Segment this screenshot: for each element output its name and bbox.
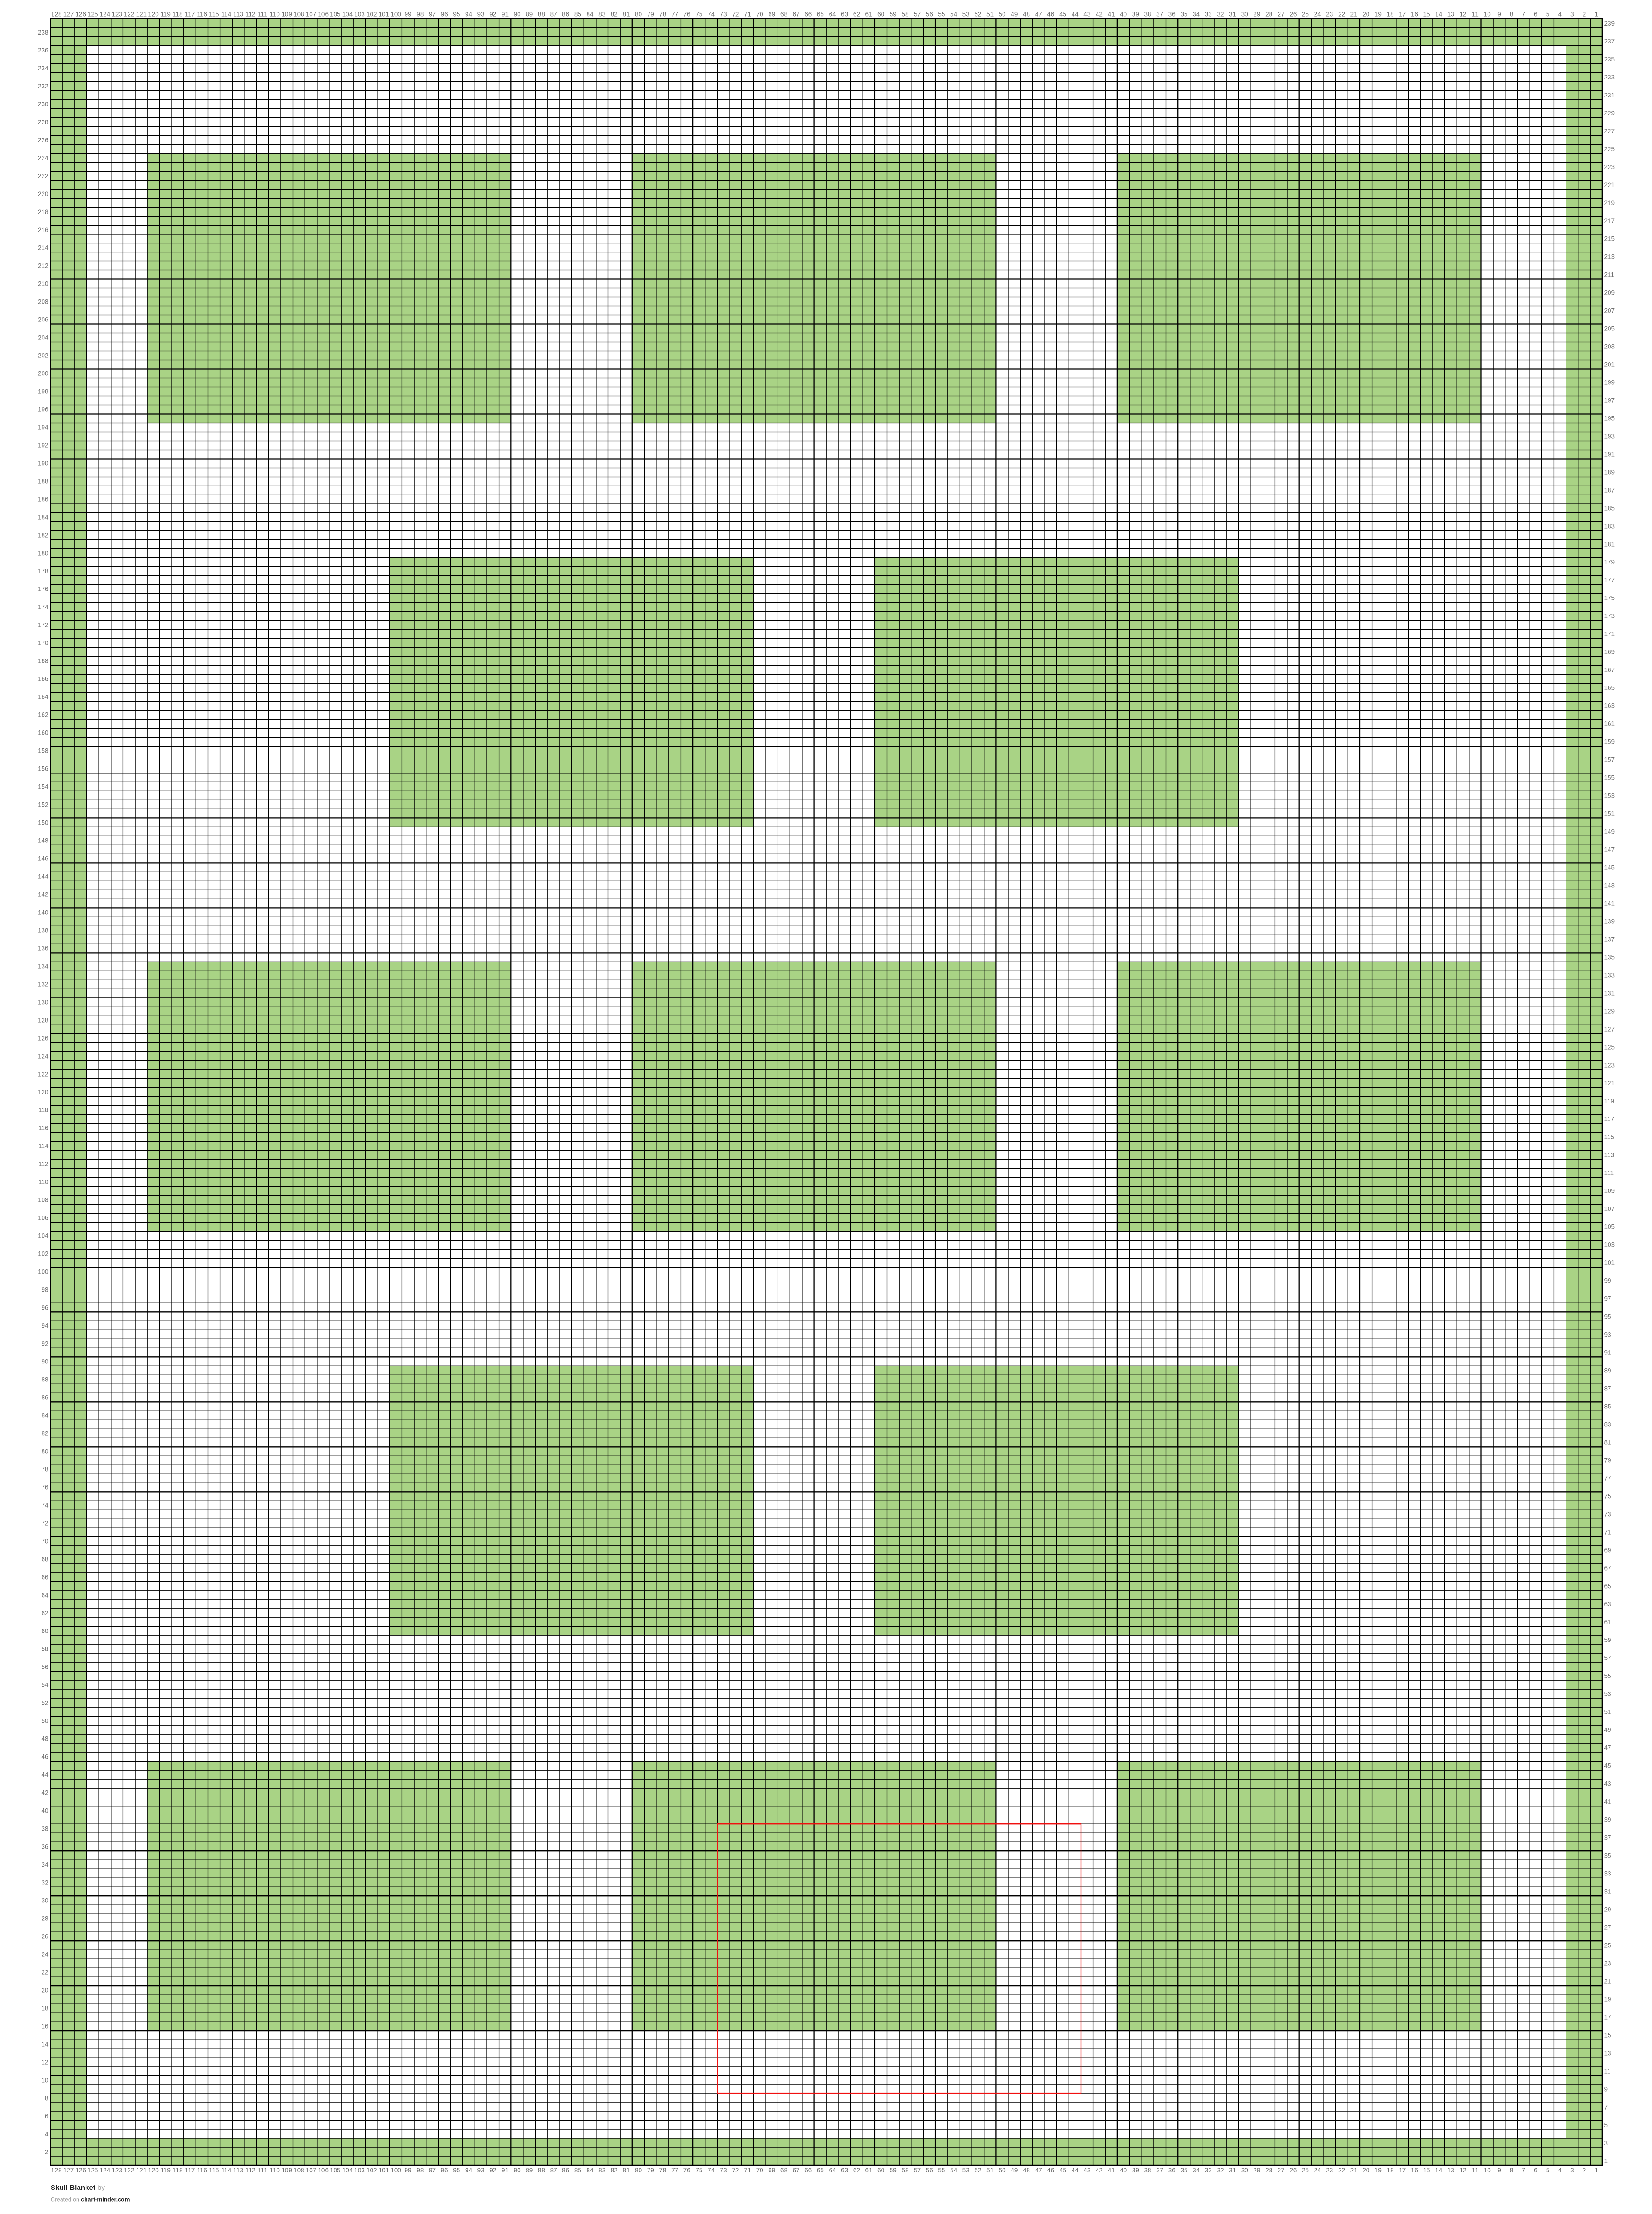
svg-text:50: 50 xyxy=(999,2167,1006,2174)
svg-text:66: 66 xyxy=(804,11,812,18)
svg-text:48: 48 xyxy=(41,1735,48,1742)
svg-text:20: 20 xyxy=(1362,2167,1369,2174)
svg-text:40: 40 xyxy=(1120,11,1127,18)
svg-text:35: 35 xyxy=(1604,1852,1611,1859)
svg-text:71: 71 xyxy=(744,2167,751,2174)
svg-text:95: 95 xyxy=(453,2167,460,2174)
svg-text:22: 22 xyxy=(1338,11,1345,18)
svg-text:218: 218 xyxy=(38,208,49,216)
svg-text:106: 106 xyxy=(318,2167,329,2174)
svg-text:197: 197 xyxy=(1604,397,1615,404)
svg-text:98: 98 xyxy=(416,2167,424,2174)
svg-text:132: 132 xyxy=(38,981,49,988)
svg-text:47: 47 xyxy=(1035,2167,1042,2174)
svg-text:205: 205 xyxy=(1604,325,1615,332)
svg-text:28: 28 xyxy=(1265,11,1272,18)
svg-text:231: 231 xyxy=(1604,92,1615,99)
svg-text:77: 77 xyxy=(671,11,678,18)
svg-text:102: 102 xyxy=(38,1250,49,1258)
svg-text:53: 53 xyxy=(962,11,969,18)
svg-text:59: 59 xyxy=(890,11,897,18)
svg-text:94: 94 xyxy=(465,11,473,18)
svg-text:37: 37 xyxy=(1156,11,1163,18)
svg-text:5: 5 xyxy=(1604,2121,1608,2128)
svg-text:84: 84 xyxy=(41,1412,49,1419)
svg-text:115: 115 xyxy=(1604,1134,1615,1141)
svg-text:3: 3 xyxy=(1570,2167,1574,2174)
svg-text:207: 207 xyxy=(1604,307,1615,314)
svg-text:65: 65 xyxy=(817,2167,824,2174)
svg-text:236: 236 xyxy=(38,47,49,54)
svg-text:27: 27 xyxy=(1278,11,1285,18)
svg-text:179: 179 xyxy=(1604,559,1615,566)
svg-text:61: 61 xyxy=(865,2167,872,2174)
svg-text:93: 93 xyxy=(477,11,484,18)
svg-text:36: 36 xyxy=(1168,2167,1176,2174)
svg-text:80: 80 xyxy=(41,1448,48,1455)
svg-text:214: 214 xyxy=(38,244,49,252)
svg-text:59: 59 xyxy=(890,2167,897,2174)
svg-text:18: 18 xyxy=(41,2005,48,2012)
svg-text:238: 238 xyxy=(38,29,49,36)
svg-text:23: 23 xyxy=(1326,2167,1333,2174)
svg-text:4: 4 xyxy=(45,2130,49,2137)
svg-text:105: 105 xyxy=(330,2167,341,2174)
svg-text:6: 6 xyxy=(45,2112,49,2119)
svg-text:50: 50 xyxy=(41,1717,48,1724)
svg-text:111: 111 xyxy=(258,2167,268,2174)
svg-text:113: 113 xyxy=(233,2167,243,2174)
svg-text:44: 44 xyxy=(1072,2167,1079,2174)
svg-text:52: 52 xyxy=(974,2167,981,2174)
svg-text:196: 196 xyxy=(38,406,49,413)
svg-text:58: 58 xyxy=(41,1645,48,1652)
svg-text:1: 1 xyxy=(1604,2157,1608,2164)
svg-text:149: 149 xyxy=(1604,828,1615,835)
svg-text:39: 39 xyxy=(1132,2167,1139,2174)
svg-text:216: 216 xyxy=(38,226,49,234)
svg-text:21: 21 xyxy=(1350,11,1358,18)
svg-text:90: 90 xyxy=(41,1358,48,1365)
svg-text:74: 74 xyxy=(41,1502,49,1509)
svg-text:116: 116 xyxy=(197,11,207,18)
svg-text:224: 224 xyxy=(38,155,49,162)
svg-text:156: 156 xyxy=(38,765,49,773)
svg-text:239: 239 xyxy=(1604,20,1615,27)
svg-text:166: 166 xyxy=(38,676,49,683)
svg-text:206: 206 xyxy=(38,316,49,323)
svg-text:32: 32 xyxy=(1217,11,1224,18)
svg-text:45: 45 xyxy=(1059,11,1066,18)
svg-text:38: 38 xyxy=(1144,2167,1151,2174)
svg-text:55: 55 xyxy=(938,2167,945,2174)
svg-text:185: 185 xyxy=(1604,505,1615,512)
svg-text:101: 101 xyxy=(379,2167,389,2174)
svg-text:202: 202 xyxy=(38,352,49,359)
svg-text:51: 51 xyxy=(986,2167,994,2174)
svg-text:65: 65 xyxy=(1604,1582,1611,1589)
svg-text:187: 187 xyxy=(1604,487,1615,494)
svg-text:80: 80 xyxy=(635,11,642,18)
svg-text:48: 48 xyxy=(1023,11,1030,18)
svg-text:170: 170 xyxy=(38,640,49,647)
svg-text:70: 70 xyxy=(756,2167,763,2174)
svg-text:225: 225 xyxy=(1604,146,1615,153)
svg-text:64: 64 xyxy=(829,11,837,18)
svg-text:17: 17 xyxy=(1604,2014,1611,2021)
svg-text:68: 68 xyxy=(780,2167,787,2174)
svg-text:55: 55 xyxy=(938,11,945,18)
svg-text:59: 59 xyxy=(1604,1636,1611,1643)
svg-text:29: 29 xyxy=(1604,1906,1611,1913)
svg-text:188: 188 xyxy=(38,478,49,485)
svg-text:45: 45 xyxy=(1604,1762,1611,1769)
svg-text:56: 56 xyxy=(926,2167,933,2174)
svg-text:103: 103 xyxy=(354,2167,365,2174)
svg-text:9: 9 xyxy=(1497,2167,1501,2174)
svg-text:124: 124 xyxy=(100,2167,111,2174)
svg-text:127: 127 xyxy=(1604,1026,1615,1033)
svg-text:1: 1 xyxy=(1594,2167,1598,2174)
svg-text:93: 93 xyxy=(477,2167,484,2174)
svg-text:181: 181 xyxy=(1604,541,1615,548)
svg-text:107: 107 xyxy=(306,11,317,18)
svg-text:9: 9 xyxy=(1604,2085,1608,2092)
svg-text:38: 38 xyxy=(1144,11,1151,18)
svg-text:41: 41 xyxy=(1604,1798,1611,1805)
svg-text:105: 105 xyxy=(330,11,341,18)
svg-text:124: 124 xyxy=(38,1053,49,1060)
svg-text:19: 19 xyxy=(1604,1996,1611,2003)
svg-text:117: 117 xyxy=(185,11,195,18)
svg-text:58: 58 xyxy=(901,11,908,18)
svg-text:175: 175 xyxy=(1604,595,1615,602)
svg-text:69: 69 xyxy=(768,11,775,18)
svg-text:137: 137 xyxy=(1604,936,1615,943)
svg-text:79: 79 xyxy=(1604,1457,1611,1464)
svg-text:93: 93 xyxy=(1604,1331,1611,1338)
svg-text:150: 150 xyxy=(38,819,49,826)
svg-text:3: 3 xyxy=(1604,2139,1608,2146)
svg-text:164: 164 xyxy=(38,694,49,701)
svg-text:47: 47 xyxy=(1604,1744,1611,1751)
svg-text:2: 2 xyxy=(1583,2167,1586,2174)
svg-text:66: 66 xyxy=(804,2167,812,2174)
svg-text:33: 33 xyxy=(1205,2167,1212,2174)
svg-text:25: 25 xyxy=(1604,1942,1611,1949)
svg-text:230: 230 xyxy=(38,101,49,108)
svg-text:64: 64 xyxy=(41,1591,49,1598)
svg-text:51: 51 xyxy=(986,11,994,18)
svg-text:144: 144 xyxy=(38,873,49,880)
svg-text:4: 4 xyxy=(1558,2167,1562,2174)
svg-text:20: 20 xyxy=(1362,11,1369,18)
svg-text:14: 14 xyxy=(1435,2167,1443,2174)
svg-text:120: 120 xyxy=(148,11,159,18)
svg-text:7: 7 xyxy=(1522,11,1526,18)
svg-text:17: 17 xyxy=(1399,2167,1406,2174)
svg-text:15: 15 xyxy=(1604,2032,1611,2039)
svg-text:63: 63 xyxy=(1604,1600,1611,1607)
svg-text:88: 88 xyxy=(538,11,545,18)
svg-text:199: 199 xyxy=(1604,379,1615,386)
svg-text:119: 119 xyxy=(1604,1098,1615,1105)
svg-text:31: 31 xyxy=(1229,2167,1236,2174)
svg-text:233: 233 xyxy=(1604,74,1615,81)
svg-text:123: 123 xyxy=(112,2167,122,2174)
svg-text:78: 78 xyxy=(41,1466,48,1473)
svg-text:122: 122 xyxy=(124,11,135,18)
svg-text:103: 103 xyxy=(1604,1242,1615,1249)
svg-text:46: 46 xyxy=(1047,11,1054,18)
svg-text:67: 67 xyxy=(793,2167,800,2174)
svg-text:44: 44 xyxy=(41,1771,49,1778)
svg-text:106: 106 xyxy=(38,1215,49,1222)
svg-text:31: 31 xyxy=(1604,1888,1611,1895)
svg-text:182: 182 xyxy=(38,532,49,539)
svg-text:11: 11 xyxy=(1604,2067,1611,2075)
svg-text:61: 61 xyxy=(865,11,872,18)
svg-text:2: 2 xyxy=(1583,11,1586,18)
svg-text:92: 92 xyxy=(489,11,496,18)
svg-text:136: 136 xyxy=(38,945,49,952)
svg-text:75: 75 xyxy=(695,11,702,18)
svg-text:227: 227 xyxy=(1604,128,1615,135)
svg-text:5: 5 xyxy=(1546,11,1550,18)
svg-text:180: 180 xyxy=(38,550,49,557)
svg-text:212: 212 xyxy=(38,262,49,269)
svg-text:10: 10 xyxy=(1484,11,1491,18)
svg-text:63: 63 xyxy=(841,11,848,18)
svg-text:12: 12 xyxy=(1459,11,1466,18)
svg-text:72: 72 xyxy=(732,11,739,18)
svg-text:30: 30 xyxy=(1241,2167,1248,2174)
svg-text:30: 30 xyxy=(1241,11,1248,18)
svg-text:16: 16 xyxy=(1411,2167,1418,2174)
svg-text:114: 114 xyxy=(221,11,232,18)
svg-text:141: 141 xyxy=(1604,900,1615,907)
svg-text:11: 11 xyxy=(1472,11,1479,18)
svg-text:163: 163 xyxy=(1604,703,1615,710)
svg-text:101: 101 xyxy=(379,11,389,18)
svg-text:168: 168 xyxy=(38,658,49,665)
svg-text:89: 89 xyxy=(526,2167,533,2174)
svg-text:52: 52 xyxy=(41,1699,48,1706)
svg-text:85: 85 xyxy=(1604,1403,1611,1410)
svg-text:190: 190 xyxy=(38,460,49,467)
svg-text:183: 183 xyxy=(1604,523,1615,530)
svg-text:104: 104 xyxy=(38,1233,49,1240)
svg-text:118: 118 xyxy=(173,11,183,18)
svg-text:29: 29 xyxy=(1253,11,1260,18)
svg-text:95: 95 xyxy=(1604,1313,1611,1320)
svg-text:26: 26 xyxy=(1289,2167,1297,2174)
svg-text:174: 174 xyxy=(38,604,49,611)
svg-text:36: 36 xyxy=(41,1843,48,1850)
svg-text:1: 1 xyxy=(1594,11,1598,18)
svg-text:81: 81 xyxy=(1604,1439,1611,1446)
svg-text:208: 208 xyxy=(38,298,49,305)
svg-text:198: 198 xyxy=(38,388,49,395)
svg-text:70: 70 xyxy=(756,11,763,18)
svg-text:13: 13 xyxy=(1447,2167,1454,2174)
svg-text:110: 110 xyxy=(38,1179,49,1186)
svg-text:95: 95 xyxy=(453,11,460,18)
svg-text:213: 213 xyxy=(1604,253,1615,260)
svg-text:77: 77 xyxy=(1604,1475,1611,1482)
svg-text:51: 51 xyxy=(1604,1708,1611,1715)
svg-text:125: 125 xyxy=(87,2167,98,2174)
svg-text:92: 92 xyxy=(489,2167,496,2174)
svg-text:176: 176 xyxy=(38,586,49,593)
svg-text:130: 130 xyxy=(38,999,49,1006)
svg-text:193: 193 xyxy=(1604,433,1615,440)
svg-text:27: 27 xyxy=(1278,2167,1285,2174)
svg-text:40: 40 xyxy=(1120,2167,1127,2174)
svg-text:40: 40 xyxy=(41,1807,48,1814)
svg-text:82: 82 xyxy=(611,11,618,18)
svg-text:57: 57 xyxy=(914,11,921,18)
svg-text:154: 154 xyxy=(38,783,49,790)
svg-text:72: 72 xyxy=(732,2167,739,2174)
svg-text:71: 71 xyxy=(744,11,751,18)
svg-text:173: 173 xyxy=(1604,613,1615,620)
svg-text:15: 15 xyxy=(1423,11,1430,18)
svg-text:124: 124 xyxy=(100,11,111,18)
svg-text:201: 201 xyxy=(1604,361,1615,368)
svg-text:68: 68 xyxy=(41,1555,48,1563)
svg-text:99: 99 xyxy=(405,2167,412,2174)
svg-text:34: 34 xyxy=(41,1861,49,1868)
svg-text:47: 47 xyxy=(1035,11,1042,18)
svg-text:128: 128 xyxy=(51,11,62,18)
svg-text:9: 9 xyxy=(1497,11,1501,18)
svg-text:121: 121 xyxy=(136,2167,147,2174)
svg-text:126: 126 xyxy=(38,1035,49,1042)
svg-text:142: 142 xyxy=(38,891,49,898)
svg-text:56: 56 xyxy=(926,11,933,18)
svg-text:11: 11 xyxy=(1472,2167,1479,2174)
svg-text:58: 58 xyxy=(901,2167,908,2174)
svg-text:112: 112 xyxy=(245,11,256,18)
svg-text:153: 153 xyxy=(1604,792,1615,799)
svg-text:148: 148 xyxy=(38,837,49,844)
svg-text:140: 140 xyxy=(38,909,49,916)
svg-text:184: 184 xyxy=(38,514,49,521)
svg-text:109: 109 xyxy=(281,2167,292,2174)
svg-text:107: 107 xyxy=(306,2167,317,2174)
svg-text:46: 46 xyxy=(41,1753,48,1760)
svg-text:151: 151 xyxy=(1604,810,1615,817)
svg-text:61: 61 xyxy=(1604,1618,1611,1625)
svg-text:33: 33 xyxy=(1604,1870,1611,1877)
svg-text:128: 128 xyxy=(38,1017,49,1024)
svg-text:159: 159 xyxy=(1604,738,1615,746)
svg-text:4: 4 xyxy=(1558,11,1562,18)
svg-text:102: 102 xyxy=(366,11,377,18)
svg-text:6: 6 xyxy=(1534,2167,1538,2174)
svg-text:26: 26 xyxy=(41,1933,48,1940)
svg-text:79: 79 xyxy=(647,11,654,18)
svg-text:78: 78 xyxy=(659,11,666,18)
svg-text:110: 110 xyxy=(269,11,280,18)
svg-text:22: 22 xyxy=(41,1969,48,1976)
svg-text:118: 118 xyxy=(38,1107,49,1114)
svg-text:203: 203 xyxy=(1604,343,1615,350)
svg-text:13: 13 xyxy=(1604,2049,1611,2057)
svg-text:17: 17 xyxy=(1399,11,1406,18)
svg-text:43: 43 xyxy=(1083,11,1090,18)
svg-text:113: 113 xyxy=(233,11,243,18)
svg-text:53: 53 xyxy=(1604,1690,1611,1697)
svg-text:21: 21 xyxy=(1350,2167,1358,2174)
svg-text:82: 82 xyxy=(611,2167,618,2174)
svg-text:39: 39 xyxy=(1132,11,1139,18)
svg-text:76: 76 xyxy=(683,11,691,18)
svg-text:Created on chart-minder.com: Created on chart-minder.com xyxy=(51,2196,130,2203)
svg-text:147: 147 xyxy=(1604,846,1615,853)
svg-text:92: 92 xyxy=(41,1340,48,1347)
svg-text:57: 57 xyxy=(914,2167,921,2174)
svg-text:77: 77 xyxy=(671,2167,678,2174)
svg-text:127: 127 xyxy=(63,11,74,18)
svg-text:97: 97 xyxy=(1604,1295,1611,1302)
svg-text:91: 91 xyxy=(502,2167,509,2174)
svg-text:28: 28 xyxy=(41,1915,48,1922)
svg-text:126: 126 xyxy=(75,2167,86,2174)
svg-text:204: 204 xyxy=(38,334,49,341)
svg-text:116: 116 xyxy=(38,1125,49,1132)
svg-text:69: 69 xyxy=(1604,1546,1611,1554)
svg-text:127: 127 xyxy=(63,2167,74,2174)
svg-text:37: 37 xyxy=(1604,1834,1611,1841)
svg-text:105: 105 xyxy=(1604,1224,1615,1231)
svg-text:222: 222 xyxy=(38,173,49,180)
svg-text:20: 20 xyxy=(41,1987,48,1994)
svg-text:125: 125 xyxy=(87,11,98,18)
svg-text:104: 104 xyxy=(342,2167,353,2174)
svg-text:119: 119 xyxy=(160,2167,171,2174)
svg-text:83: 83 xyxy=(598,11,605,18)
svg-text:60: 60 xyxy=(41,1627,48,1634)
svg-text:116: 116 xyxy=(197,2167,207,2174)
svg-text:52: 52 xyxy=(974,11,981,18)
svg-text:49: 49 xyxy=(1011,11,1018,18)
svg-text:160: 160 xyxy=(38,729,49,737)
svg-text:19: 19 xyxy=(1375,2167,1382,2174)
svg-text:84: 84 xyxy=(586,11,594,18)
svg-text:121: 121 xyxy=(1604,1080,1615,1087)
svg-text:66: 66 xyxy=(41,1573,48,1580)
svg-text:49: 49 xyxy=(1604,1726,1611,1733)
svg-text:117: 117 xyxy=(185,2167,195,2174)
svg-text:99: 99 xyxy=(405,11,412,18)
svg-text:217: 217 xyxy=(1604,217,1615,225)
svg-text:44: 44 xyxy=(1072,11,1079,18)
svg-text:220: 220 xyxy=(38,191,49,198)
svg-text:7: 7 xyxy=(1604,2103,1608,2110)
svg-text:76: 76 xyxy=(41,1484,48,1491)
svg-text:189: 189 xyxy=(1604,469,1615,476)
svg-text:191: 191 xyxy=(1604,451,1615,458)
svg-text:226: 226 xyxy=(38,137,49,144)
svg-text:8: 8 xyxy=(1510,2167,1514,2174)
svg-text:78: 78 xyxy=(659,2167,666,2174)
svg-text:94: 94 xyxy=(41,1322,49,1329)
svg-text:38: 38 xyxy=(41,1825,48,1832)
svg-text:99: 99 xyxy=(1604,1277,1611,1285)
svg-text:71: 71 xyxy=(1604,1528,1611,1536)
